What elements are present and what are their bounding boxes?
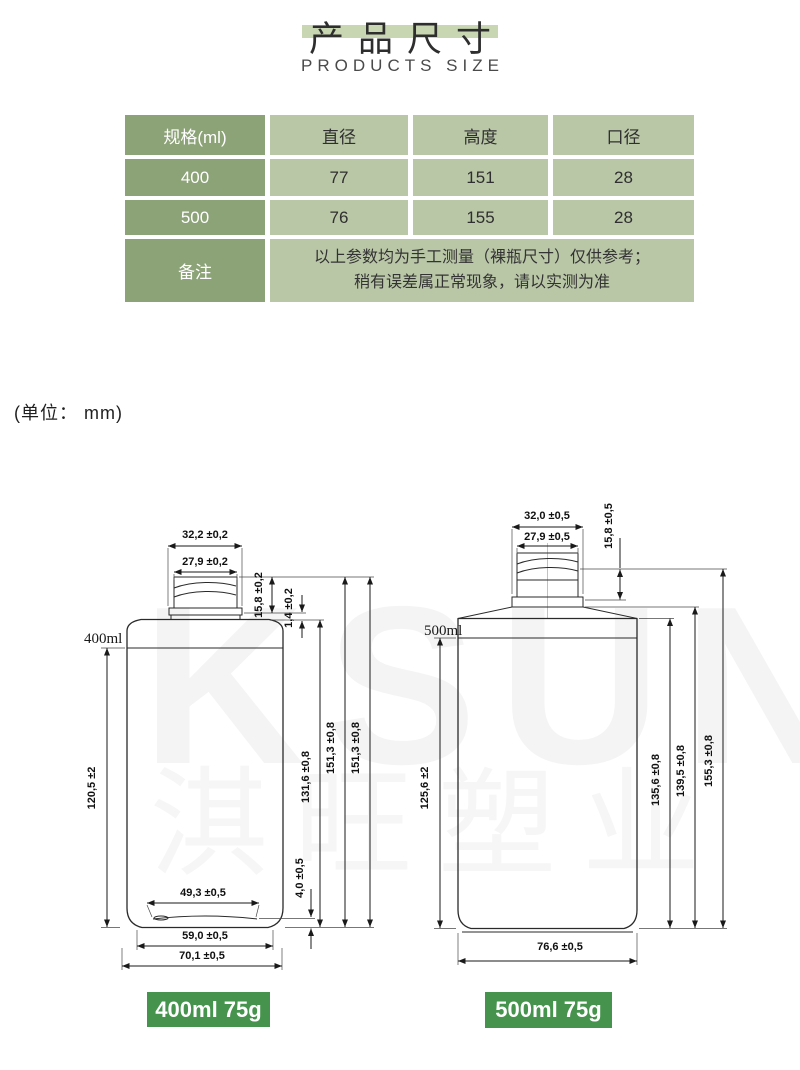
left-bottle-body (127, 620, 283, 928)
dim-right-body-height: 125,6 ±2 (419, 767, 431, 810)
dim-right-mid-height: 139,5 ±0,8 (675, 745, 687, 797)
row-400-spec: 400 (125, 159, 265, 196)
page-subtitle: PRODUCTS SIZE (0, 56, 800, 76)
dim-right-top-inner: 27,9 ±0,5 (524, 531, 570, 543)
note-label: 备注 (125, 239, 265, 302)
note-text: 以上参数均为手工测量（裸瓶尺寸）仅供参考； 稍有误差属正常现象，请以实测为准 (270, 239, 694, 302)
row-500-diameter: 76 (270, 200, 408, 235)
dim-left-body-height: 120,5 ±2 (86, 767, 98, 810)
dim-left-base-inner: 49,3 ±0,5 (180, 887, 226, 899)
row-500-mouth: 28 (553, 200, 694, 235)
dim-right-total-height: 155,3 ±0,8 (703, 735, 715, 787)
col-header-height: 高度 (413, 115, 548, 155)
row-500-height: 155 (413, 200, 548, 235)
left-bottle-drawing: 32,2 ±0,2 27,9 ±0,2 15,8 ±0,2 1,4 ±0,2 1… (60, 490, 390, 990)
page-title: 产品尺寸 (0, 11, 800, 62)
dim-left-top-inner: 27,9 ±0,2 (182, 556, 228, 568)
right-bottle-body (458, 619, 637, 929)
dim-left-base-outer: 70,1 ±0,5 (179, 950, 225, 962)
row-500-spec: 500 (125, 200, 265, 235)
spec-table: 规格(ml) 直径 高度 口径 400 77 151 28 500 76 155… (125, 115, 694, 302)
left-bottle-neck (169, 577, 242, 619)
dim-right-top-outer: 32,0 ±0,5 (524, 510, 570, 522)
left-volume-label: 400ml (84, 631, 122, 647)
dim-left-neck-height: 15,8 ±0,2 (253, 572, 265, 618)
dim-right-base-width: 76,6 ±0,5 (537, 941, 583, 953)
badge-500ml-75g: 500ml 75g (485, 992, 612, 1028)
dim-left-base-mid: 59,0 ±0,5 (182, 930, 228, 942)
right-volume-label: 500ml (424, 623, 462, 639)
col-header-diameter: 直径 (270, 115, 408, 155)
row-400-mouth: 28 (553, 159, 694, 196)
row-400-diameter: 77 (270, 159, 408, 196)
dim-left-neck-gap: 1,4 ±0,2 (283, 588, 295, 628)
dim-left-shoulder-height: 131,6 ±0,8 (300, 751, 312, 803)
dim-right-shoulder-height: 135,6 ±0,8 (650, 754, 662, 806)
row-400-height: 151 (413, 159, 548, 196)
badge-400ml-75g: 400ml 75g (147, 992, 270, 1027)
dim-left-total-height-1: 151,3 ±0,8 (325, 722, 337, 774)
col-header-spec: 规格(ml) (125, 115, 265, 155)
right-bottle-drawing: 32,0 ±0,5 27,9 ±0,5 15,8 ±0,5 125,6 ±2 1… (400, 490, 730, 990)
col-header-mouth: 口径 (553, 115, 694, 155)
unit-note: (单位： mm) (14, 399, 123, 425)
note-line-2: 稍有误差属正常现象，请以实测为准 (354, 271, 610, 296)
note-line-1: 以上参数均为手工测量（裸瓶尺寸）仅供参考； (314, 246, 650, 271)
dim-left-top-outer: 32,2 ±0,2 (182, 529, 228, 541)
dim-left-base-recess: 4,0 ±0,5 (294, 858, 306, 898)
dim-right-neck-height: 15,8 ±0,5 (603, 503, 615, 549)
dim-left-total-height-2: 151,3 ±0,8 (350, 722, 362, 774)
